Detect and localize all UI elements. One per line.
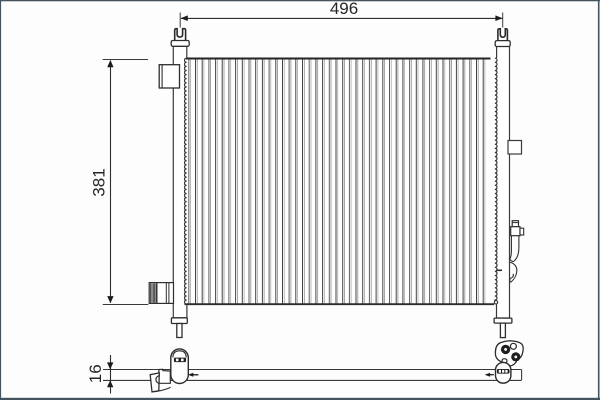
svg-text:381: 381 xyxy=(90,168,109,196)
svg-text:496: 496 xyxy=(330,0,358,18)
svg-text:16: 16 xyxy=(86,364,105,383)
